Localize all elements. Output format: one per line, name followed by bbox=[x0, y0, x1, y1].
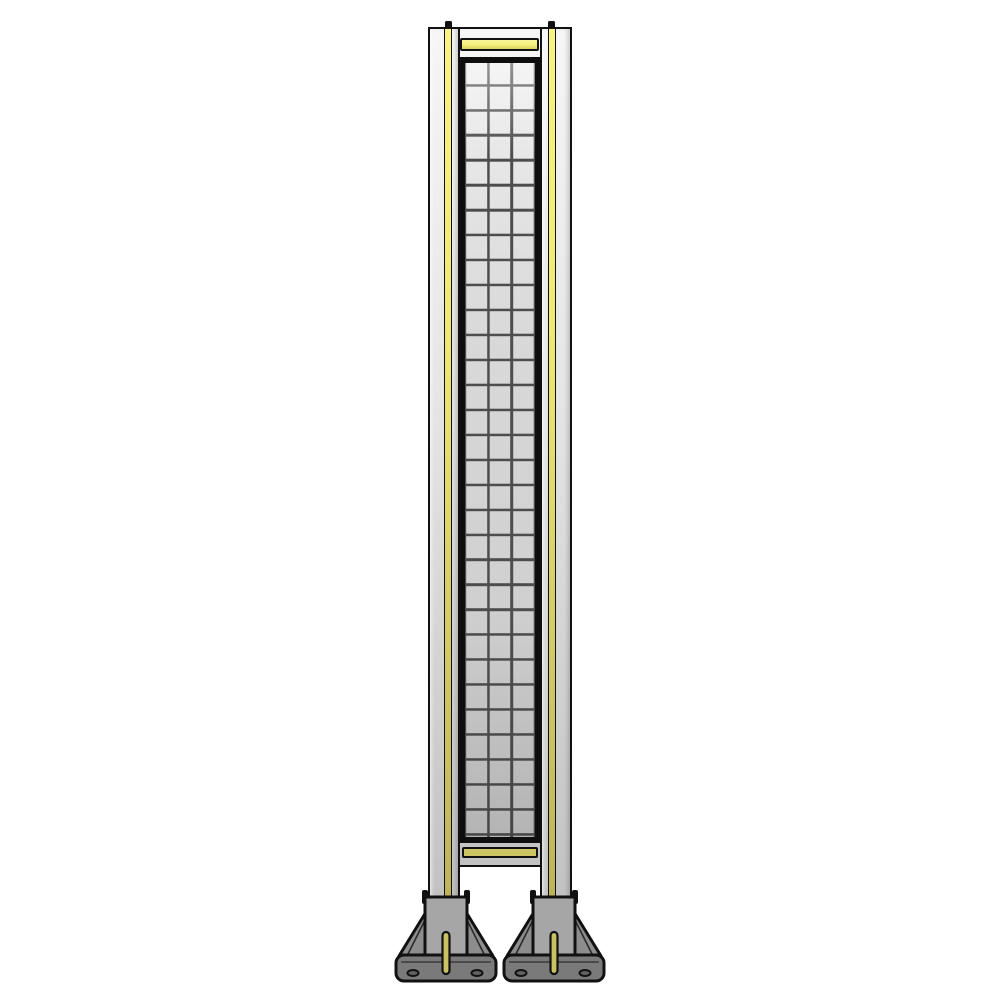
right-upright-post bbox=[540, 27, 572, 900]
right-mounting-foot bbox=[501, 886, 607, 984]
right-cap-tab bbox=[548, 21, 555, 28]
left-foot-bolt-hole bbox=[408, 970, 419, 976]
left-upright-post bbox=[428, 27, 460, 900]
right-foot-yellow-slot bbox=[551, 932, 558, 974]
left-foot-left-gusset bbox=[398, 912, 426, 960]
top-yellow-channel-bar bbox=[460, 38, 539, 51]
left-foot-yellow-slot bbox=[443, 932, 450, 974]
right-foot-left-gusset bbox=[506, 912, 534, 960]
left-cap-tab bbox=[445, 21, 452, 28]
right-foot-bolt-hole bbox=[580, 970, 591, 976]
right-foot-bolt-hole bbox=[516, 970, 527, 976]
bottom-yellow-channel-bar bbox=[462, 847, 538, 858]
right-post-yellow-strip bbox=[548, 29, 556, 898]
right-foot-right-gusset bbox=[574, 912, 602, 960]
left-mounting-foot bbox=[393, 886, 499, 984]
left-post-yellow-strip bbox=[444, 29, 452, 898]
wire-mesh-panel bbox=[459, 57, 541, 843]
render-canvas bbox=[0, 0, 1000, 1000]
left-foot-bolt-hole bbox=[472, 970, 483, 976]
wire-mesh-grid bbox=[465, 63, 535, 837]
left-foot-right-gusset bbox=[466, 912, 494, 960]
